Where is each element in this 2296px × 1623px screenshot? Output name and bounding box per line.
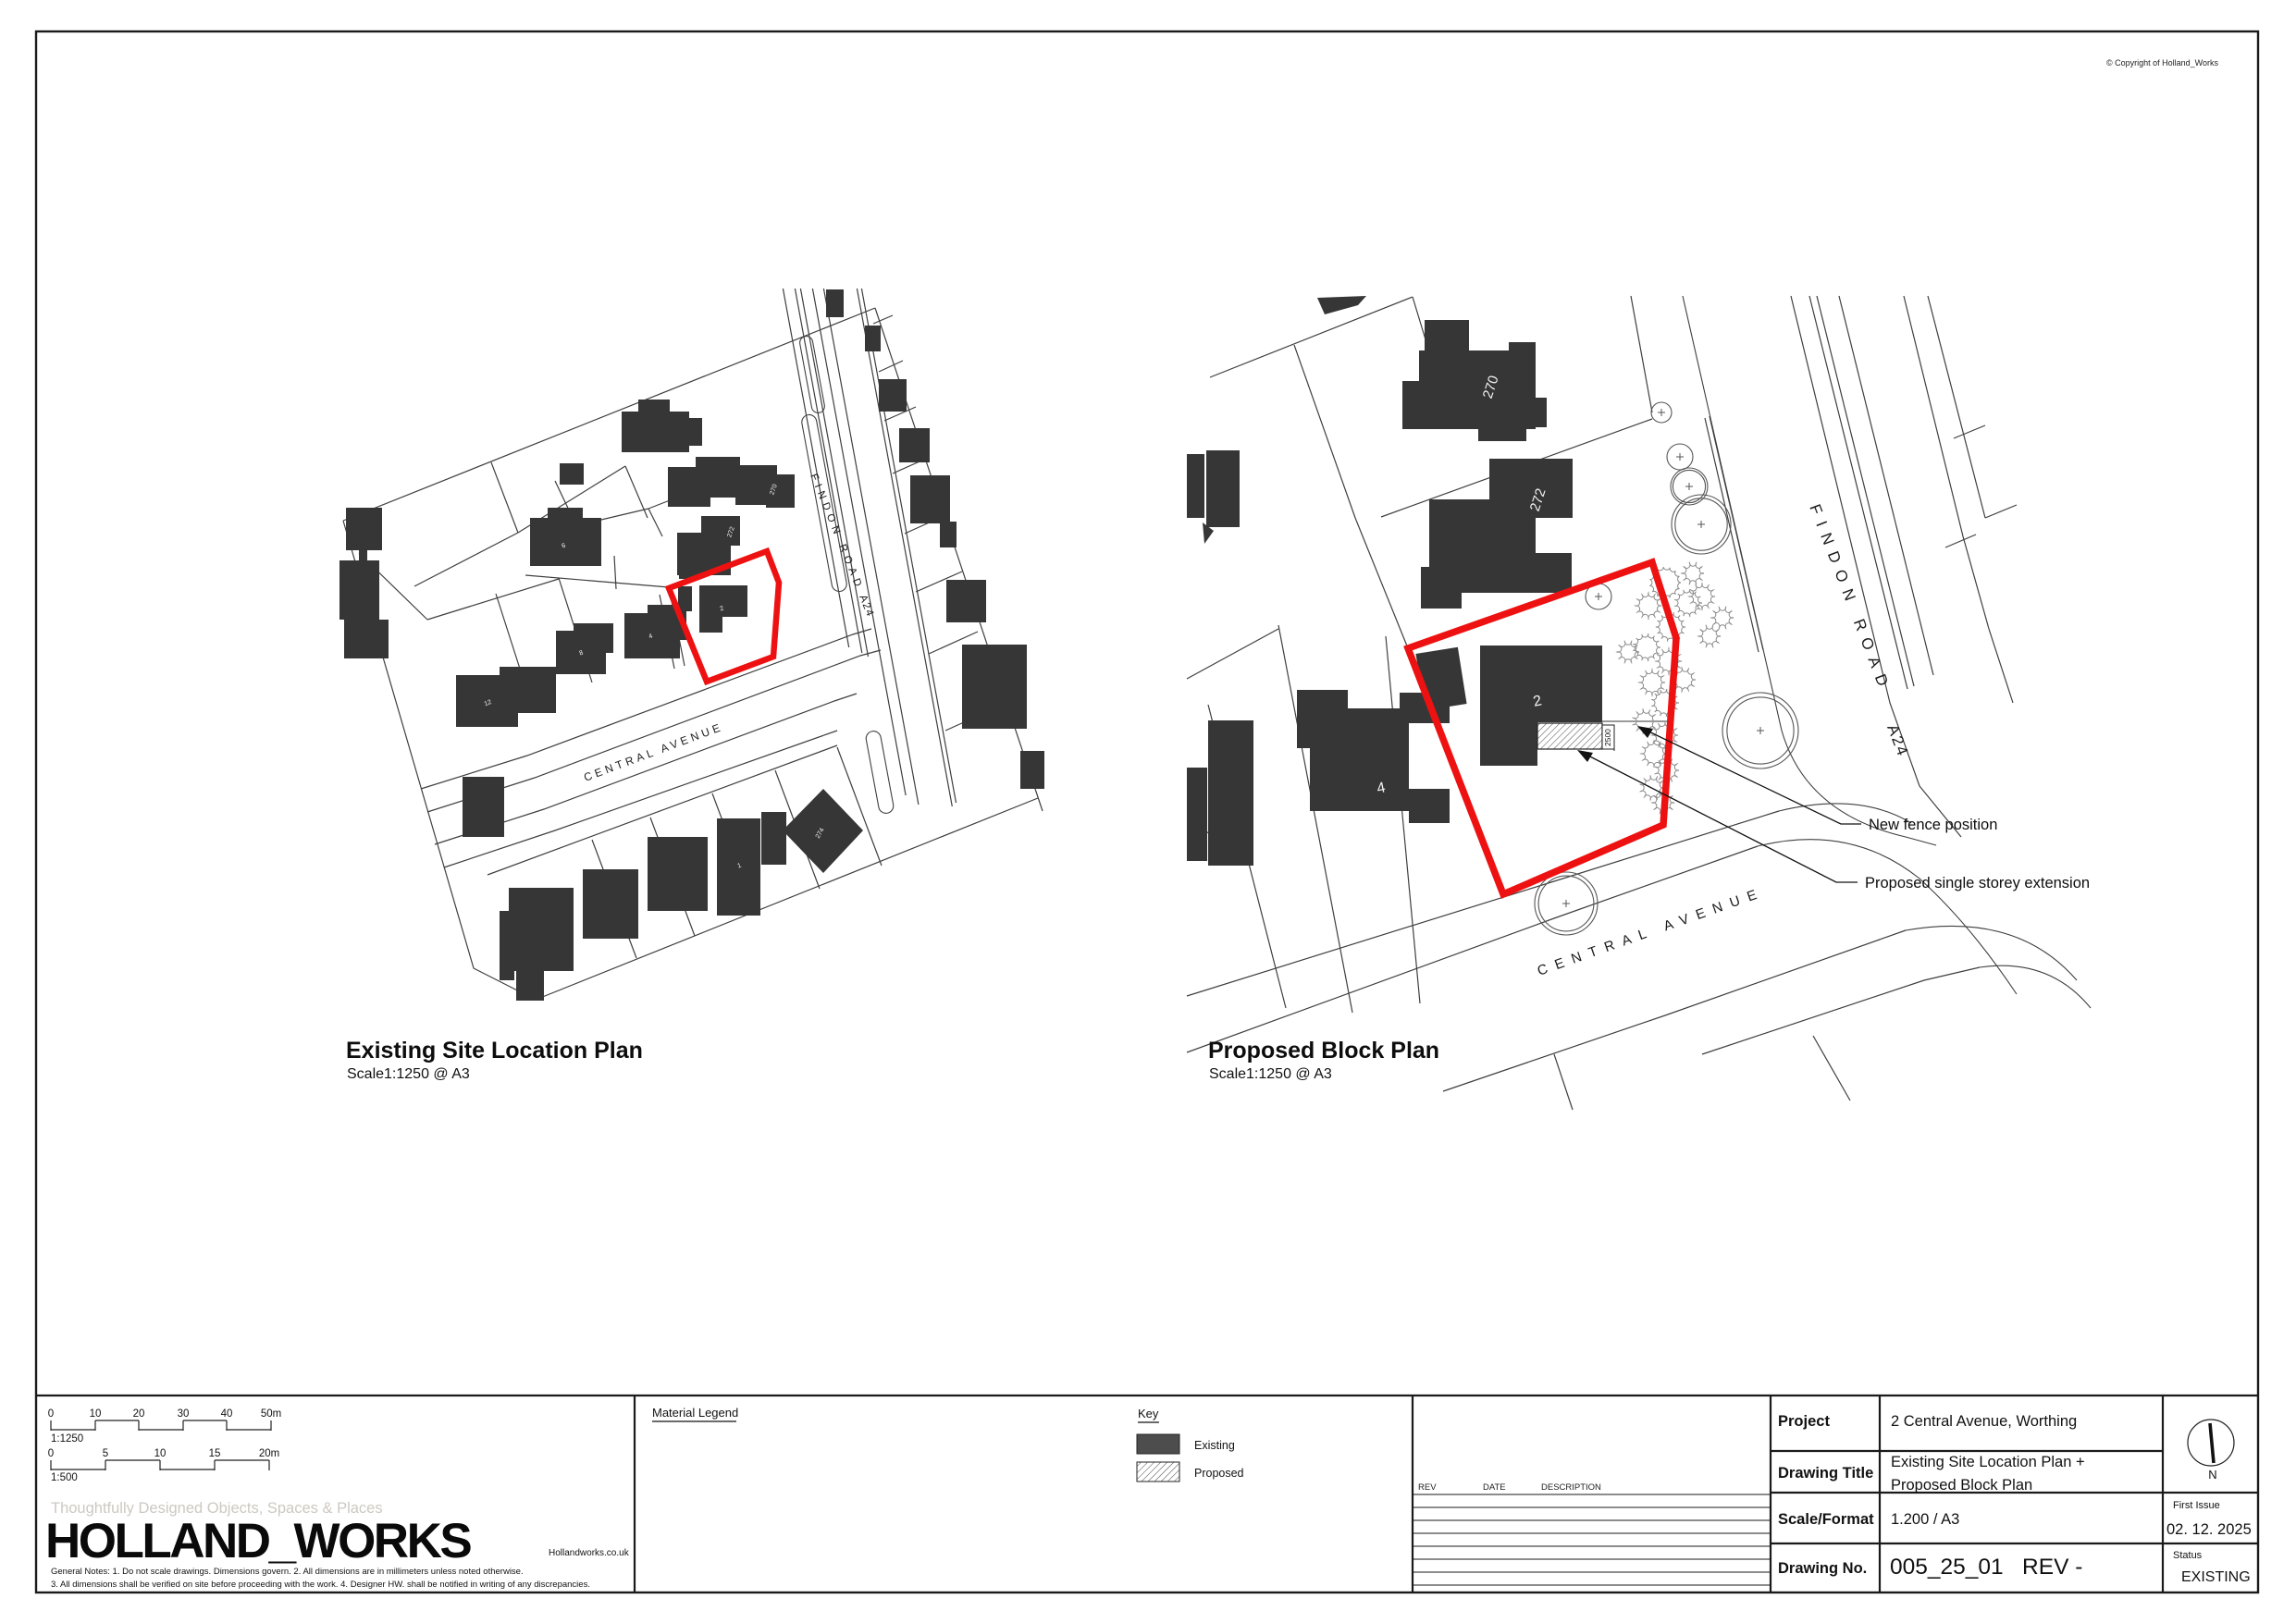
svg-text:Drawing No.: Drawing No. — [1778, 1560, 1867, 1577]
svg-text:40: 40 — [221, 1408, 233, 1420]
svg-text:Scale/Format: Scale/Format — [1778, 1511, 1874, 1528]
svg-text:New fence position: New fence position — [1869, 817, 1997, 833]
svg-text:2 Central Avenue, Worthing: 2 Central Avenue, Worthing — [1891, 1413, 2077, 1430]
svg-text:Scale1:1250 @ A3: Scale1:1250 @ A3 — [347, 1066, 470, 1082]
svg-text:EXISTING: EXISTING — [2181, 1569, 2251, 1585]
svg-text:First Issue: First Issue — [2173, 1500, 2220, 1511]
svg-text:Status: Status — [2173, 1550, 2203, 1561]
svg-text:20: 20 — [133, 1408, 145, 1420]
svg-text:General Notes: 1. Do not scal: General Notes: 1. Do not scale drawings.… — [51, 1567, 524, 1577]
svg-text:Project: Project — [1778, 1413, 1830, 1430]
svg-text:Existing Site Location Plan +: Existing Site Location Plan + — [1891, 1454, 2085, 1470]
svg-text:1:1250: 1:1250 — [51, 1433, 83, 1445]
svg-text:Proposed Block Plan: Proposed Block Plan — [1208, 1038, 1439, 1064]
svg-text:1:500: 1:500 — [51, 1472, 78, 1483]
svg-text:02. 12. 2025: 02. 12. 2025 — [2166, 1521, 2252, 1538]
svg-text:N: N — [2208, 1468, 2216, 1482]
svg-text:Drawing Title: Drawing Title — [1778, 1465, 1873, 1482]
svg-text:0: 0 — [48, 1408, 54, 1420]
svg-text:3. All dimensions shall be ver: 3. All dimensions shall be verified on s… — [51, 1580, 590, 1590]
svg-text:0: 0 — [48, 1448, 54, 1459]
svg-text:DATE: DATE — [1483, 1482, 1506, 1493]
svg-text:Hollandworks.co.uk: Hollandworks.co.uk — [549, 1548, 630, 1558]
svg-text:20m: 20m — [259, 1448, 279, 1459]
svg-text:50m: 50m — [261, 1408, 281, 1420]
svg-text:Scale1:1250 @ A3: Scale1:1250 @ A3 — [1209, 1066, 1332, 1082]
svg-text:© Copyright of Holland_Works: © Copyright of Holland_Works — [2106, 58, 2219, 68]
svg-text:REV: REV — [1418, 1482, 1437, 1493]
svg-text:10: 10 — [90, 1408, 102, 1420]
svg-text:10: 10 — [154, 1448, 167, 1459]
svg-text:30: 30 — [178, 1408, 190, 1420]
svg-text:Key: Key — [1138, 1407, 1159, 1420]
svg-text:Existing Site Location Plan: Existing Site Location Plan — [346, 1038, 643, 1064]
svg-text:5: 5 — [103, 1448, 108, 1459]
svg-text:15: 15 — [209, 1448, 221, 1459]
svg-text:Proposed Block Plan: Proposed Block Plan — [1891, 1477, 2032, 1494]
svg-text:DESCRIPTION: DESCRIPTION — [1541, 1482, 1601, 1493]
svg-text:Material Legend: Material Legend — [652, 1406, 738, 1420]
svg-text:HOLLAND_WORKS: HOLLAND_WORKS — [45, 1514, 471, 1568]
svg-text:1.200 / A3: 1.200 / A3 — [1891, 1511, 1959, 1528]
svg-text:Proposed: Proposed — [1194, 1467, 1244, 1480]
svg-text:Existing: Existing — [1194, 1439, 1235, 1452]
svg-text:Proposed single storey extensi: Proposed single storey extension — [1865, 875, 2090, 891]
svg-text:2500: 2500 — [1603, 729, 1612, 746]
svg-text:005_25_01 REV -: 005_25_01 REV - — [1890, 1555, 2082, 1580]
